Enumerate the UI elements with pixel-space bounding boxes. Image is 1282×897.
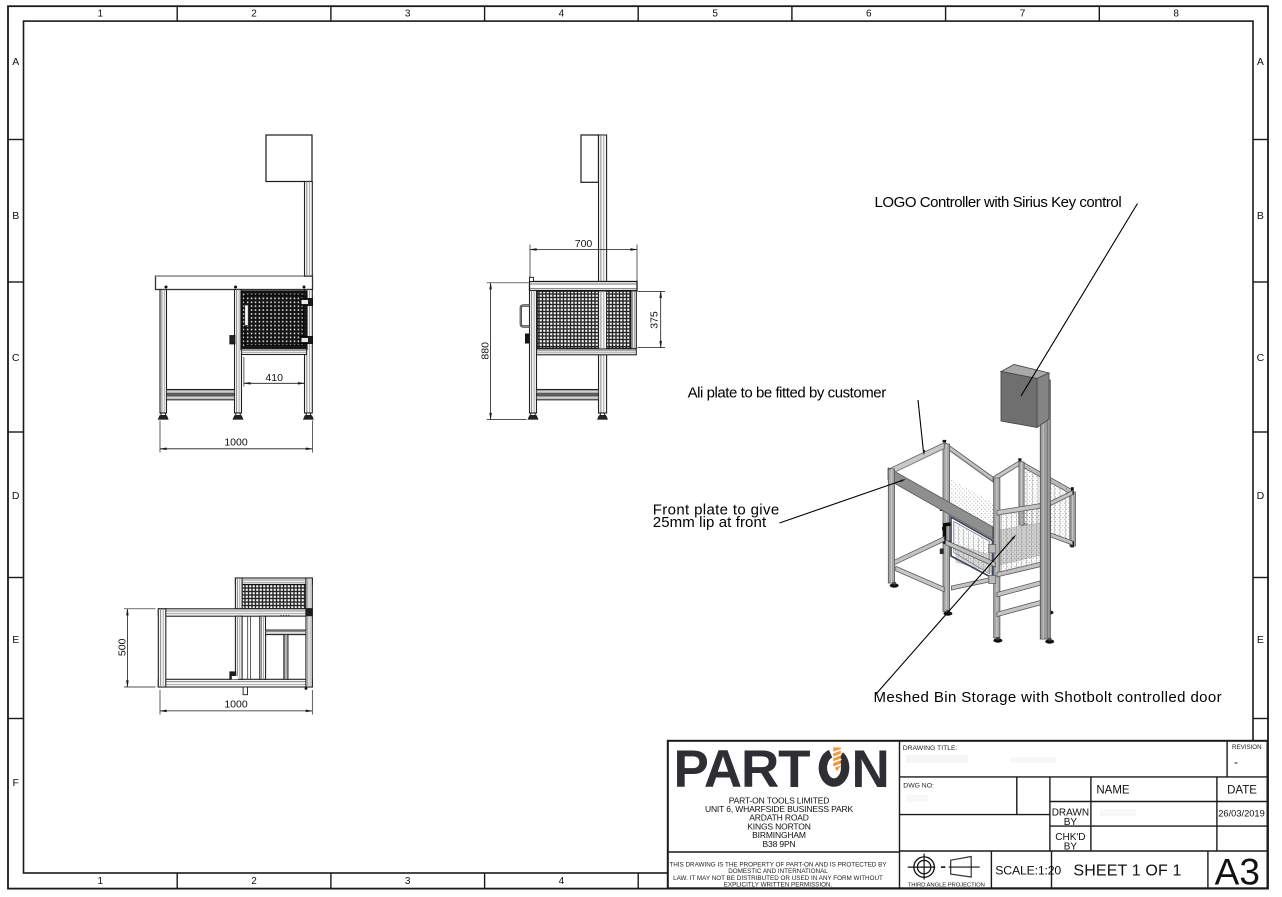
- svg-text:SHEET 1 OF 1: SHEET 1 OF 1: [1073, 863, 1181, 880]
- svg-text:B: B: [1257, 210, 1264, 222]
- svg-text:B: B: [12, 210, 19, 222]
- svg-text:EXPLICITLY WRITTEN PERMISSION.: EXPLICITLY WRITTEN PERMISSION.: [724, 882, 833, 889]
- svg-text:F: F: [12, 777, 18, 789]
- svg-text:700: 700: [575, 238, 593, 250]
- svg-text:BY: BY: [1064, 841, 1078, 852]
- svg-text:1: 1: [98, 876, 104, 887]
- svg-text:2: 2: [251, 876, 257, 887]
- svg-text:DWG NO:: DWG NO:: [903, 782, 934, 789]
- svg-text:PART: PART: [674, 740, 811, 799]
- svg-text:26/03/2019: 26/03/2019: [1218, 808, 1265, 818]
- svg-text:N: N: [852, 740, 890, 799]
- svg-text:Ali plate to be fitted by cust: Ali plate to be fitted by customer: [688, 385, 887, 402]
- svg-text:1000: 1000: [224, 699, 248, 711]
- svg-text:A3: A3: [1215, 852, 1260, 893]
- svg-text:A: A: [12, 56, 19, 68]
- svg-text:4: 4: [559, 9, 565, 20]
- svg-text:D: D: [1257, 490, 1265, 502]
- svg-text:THIRD ANGLE PROJECTION: THIRD ANGLE PROJECTION: [908, 882, 985, 888]
- svg-text:8: 8: [1173, 9, 1179, 20]
- svg-text:D: D: [12, 490, 20, 502]
- svg-text:C: C: [12, 352, 20, 364]
- svg-text:BY: BY: [1064, 817, 1078, 828]
- svg-text:LOGO Controller with Sirius Ke: LOGO Controller with Sirius Key control: [875, 194, 1122, 211]
- svg-text:DATE: DATE: [1227, 784, 1257, 796]
- svg-text:3: 3: [405, 9, 411, 20]
- svg-text:500: 500: [117, 638, 129, 656]
- svg-text:880: 880: [480, 342, 492, 360]
- svg-text:SCALE:1:20: SCALE:1:20: [995, 864, 1061, 878]
- svg-text:E: E: [12, 634, 19, 646]
- svg-text:2: 2: [251, 9, 257, 20]
- svg-text:C: C: [1257, 352, 1265, 364]
- svg-text:1000: 1000: [224, 437, 248, 449]
- svg-text:3: 3: [405, 876, 411, 887]
- svg-text:-: -: [1234, 755, 1238, 769]
- svg-text:NAME: NAME: [1096, 784, 1130, 796]
- svg-text:7: 7: [1020, 9, 1026, 20]
- svg-text:25mm lip at front: 25mm lip at front: [653, 514, 767, 531]
- svg-text:6: 6: [866, 9, 872, 20]
- svg-text:375: 375: [648, 311, 660, 329]
- svg-text:4: 4: [559, 876, 565, 887]
- svg-text:5: 5: [712, 9, 718, 20]
- svg-text:A: A: [1257, 56, 1264, 68]
- svg-text:1: 1: [98, 9, 104, 20]
- svg-text:Meshed Bin Storage with Shotbo: Meshed Bin Storage with Shotbolt control…: [874, 689, 1223, 706]
- svg-text:DRAWING TITLE:: DRAWING TITLE:: [903, 745, 958, 752]
- svg-text:410: 410: [265, 372, 283, 384]
- svg-text:REVISION: REVISION: [1232, 744, 1262, 751]
- svg-text:E: E: [1257, 634, 1264, 646]
- svg-text:B38 9PN: B38 9PN: [763, 839, 796, 849]
